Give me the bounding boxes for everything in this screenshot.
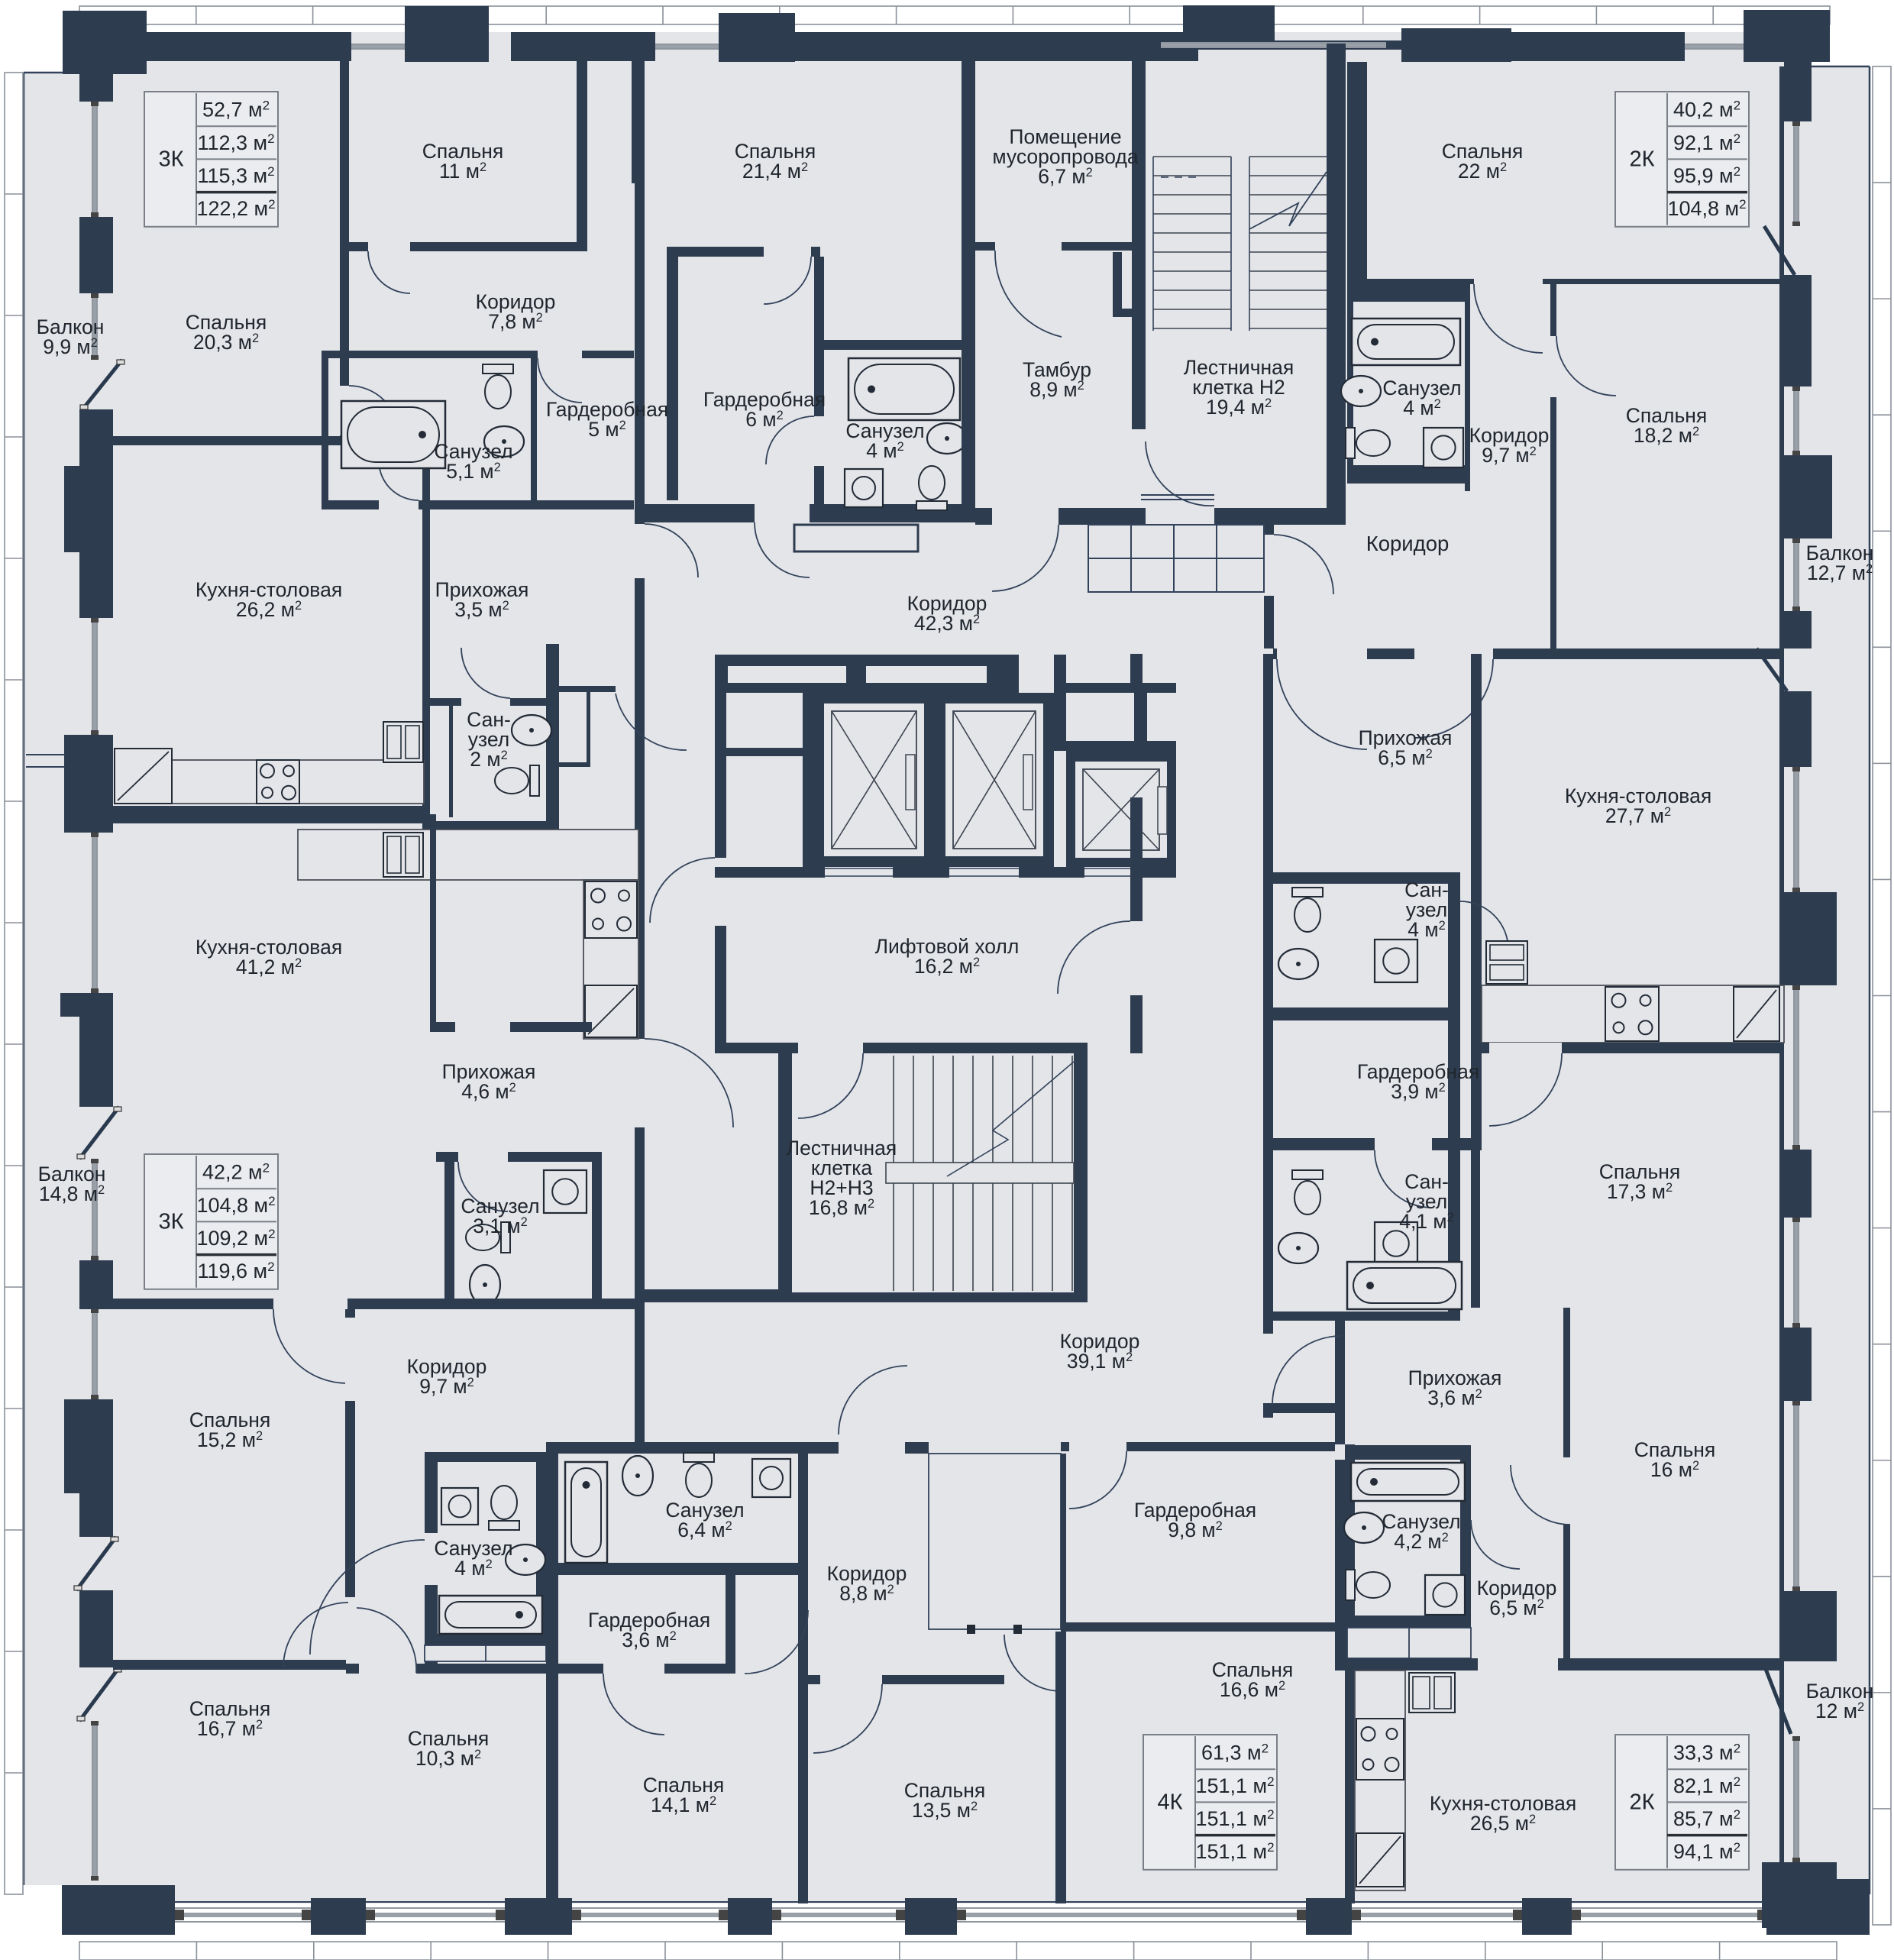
svg-text:3К: 3К	[158, 1209, 183, 1234]
svg-text:14,8 м2: 14,8 м2	[39, 1182, 105, 1205]
svg-text:3,9 м2: 3,9 м2	[1391, 1080, 1446, 1103]
svg-text:119,6 м2: 119,6 м2	[197, 1260, 274, 1282]
svg-text:4,1 м2: 4,1 м2	[1399, 1210, 1454, 1233]
svg-text:41,2 м2: 41,2 м2	[236, 956, 302, 978]
svg-text:33,3 м2: 33,3 м2	[1673, 1742, 1740, 1764]
svg-text:9,9 м2: 9,9 м2	[43, 335, 98, 358]
svg-text:104,8 м2: 104,8 м2	[1667, 197, 1746, 220]
svg-text:10,3 м2: 10,3 м2	[415, 1747, 481, 1770]
svg-text:27,7 м2: 27,7 м2	[1605, 804, 1671, 827]
svg-text:115,3 м2: 115,3 м2	[197, 164, 274, 187]
svg-text:19,4 м2: 19,4 м2	[1206, 396, 1272, 419]
svg-text:151,1 м2: 151,1 м2	[1195, 1840, 1274, 1863]
svg-text:3,5 м2: 3,5 м2	[454, 598, 509, 621]
svg-text:42,3 м2: 42,3 м2	[914, 612, 980, 635]
svg-text:39,1 м2: 39,1 м2	[1067, 1350, 1133, 1373]
svg-text:26,5 м2: 26,5 м2	[1470, 1812, 1536, 1835]
svg-text:8,9 м2: 8,9 м2	[1029, 378, 1084, 401]
svg-text:6,5 м2: 6,5 м2	[1489, 1596, 1544, 1619]
svg-text:109,2 м2: 109,2 м2	[196, 1227, 275, 1250]
svg-text:3К: 3К	[158, 147, 183, 171]
svg-text:9,8 м2: 9,8 м2	[1168, 1519, 1223, 1541]
svg-text:3,6 м2: 3,6 м2	[622, 1628, 677, 1651]
svg-text:61,3 м2: 61,3 м2	[1201, 1742, 1269, 1764]
svg-text:6,5 м2: 6,5 м2	[1378, 746, 1433, 769]
svg-text:7,8 м2: 7,8 м2	[488, 310, 543, 333]
svg-text:3,6 м2: 3,6 м2	[1427, 1386, 1482, 1409]
svg-text:95,9 м2: 95,9 м2	[1673, 164, 1740, 187]
svg-text:16,8 м2: 16,8 м2	[809, 1196, 874, 1219]
svg-text:20,3 м2: 20,3 м2	[193, 331, 259, 354]
svg-text:15,2 м2: 15,2 м2	[197, 1428, 263, 1451]
svg-text:82,1 м2: 82,1 м2	[1673, 1774, 1740, 1797]
svg-text:4,2 м2: 4,2 м2	[1394, 1530, 1449, 1553]
svg-text:2К: 2К	[1629, 1790, 1654, 1814]
svg-text:151,1 м2: 151,1 м2	[1195, 1774, 1274, 1797]
svg-text:94,1 м2: 94,1 м2	[1673, 1840, 1740, 1863]
svg-text:16,7 м2: 16,7 м2	[197, 1717, 263, 1740]
svg-text:2К: 2К	[1629, 147, 1654, 171]
svg-text:6,7 м2: 6,7 м2	[1038, 165, 1093, 188]
svg-text:3,1 м2: 3,1 м2	[473, 1214, 528, 1237]
svg-text:11 м2: 11 м2	[439, 160, 486, 183]
svg-text:9,7 м2: 9,7 м2	[1482, 444, 1537, 467]
svg-text:21,4 м2: 21,4 м2	[742, 160, 808, 183]
svg-text:14,1 м2: 14,1 м2	[651, 1793, 716, 1816]
svg-text:12,7 м2: 12,7 м2	[1807, 561, 1873, 584]
svg-text:42,2 м2: 42,2 м2	[202, 1161, 270, 1184]
svg-text:18,2 м2: 18,2 м2	[1634, 424, 1699, 447]
svg-text:122,2 м2: 122,2 м2	[196, 197, 275, 220]
svg-text:112,3 м2: 112,3 м2	[197, 131, 274, 154]
svg-text:22 м2: 22 м2	[1458, 160, 1507, 183]
svg-text:13,5 м2: 13,5 м2	[912, 1799, 978, 1822]
svg-text:4К: 4К	[1157, 1790, 1182, 1814]
svg-text:4,6 м2: 4,6 м2	[461, 1080, 516, 1103]
svg-text:5,1 м2: 5,1 м2	[446, 460, 501, 483]
svg-text:16 м2: 16 м2	[1650, 1458, 1699, 1481]
svg-text:26,2 м2: 26,2 м2	[236, 598, 302, 621]
svg-text:17,3 м2: 17,3 м2	[1607, 1180, 1673, 1203]
svg-text:6,4 м2: 6,4 м2	[677, 1519, 732, 1541]
svg-text:16,2 м2: 16,2 м2	[914, 955, 980, 978]
svg-text:9,7 м2: 9,7 м2	[419, 1375, 474, 1398]
svg-text:12 м2: 12 м2	[1815, 1700, 1864, 1722]
svg-text:92,1 м2: 92,1 м2	[1673, 131, 1740, 154]
svg-text:52,7 м2: 52,7 м2	[202, 99, 270, 121]
svg-text:Коридор: Коридор	[1366, 532, 1450, 555]
svg-text:16,6 м2: 16,6 м2	[1220, 1678, 1285, 1701]
svg-text:85,7 м2: 85,7 м2	[1673, 1807, 1740, 1830]
svg-text:8,8 м2: 8,8 м2	[839, 1582, 894, 1605]
svg-text:40,2 м2: 40,2 м2	[1673, 99, 1740, 121]
svg-text:151,1 м2: 151,1 м2	[1195, 1807, 1274, 1830]
svg-text:104,8 м2: 104,8 м2	[196, 1194, 275, 1217]
